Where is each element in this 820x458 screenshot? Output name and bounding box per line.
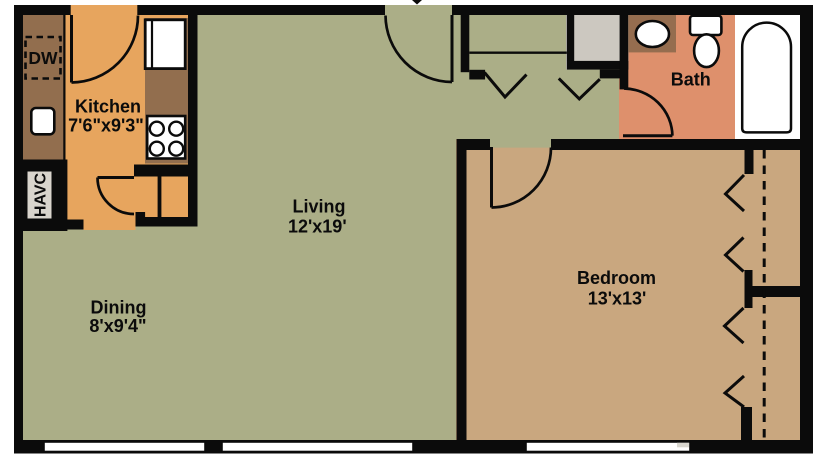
svg-text:HAVC: HAVC <box>32 172 49 217</box>
svg-text:Bedroom: Bedroom <box>577 268 656 288</box>
svg-text:Kitchen: Kitchen <box>75 97 141 117</box>
svg-text:Dining: Dining <box>91 298 147 318</box>
svg-text:7'6"x9'3": 7'6"x9'3" <box>68 115 144 135</box>
svg-text:12'x19': 12'x19' <box>288 216 347 236</box>
svg-text:Living: Living <box>293 197 346 217</box>
svg-text:8'x9'4": 8'x9'4" <box>89 316 146 336</box>
svg-text:Bath: Bath <box>671 69 711 89</box>
svg-text:DW: DW <box>28 48 58 68</box>
svg-text:13'x13': 13'x13' <box>588 289 647 309</box>
